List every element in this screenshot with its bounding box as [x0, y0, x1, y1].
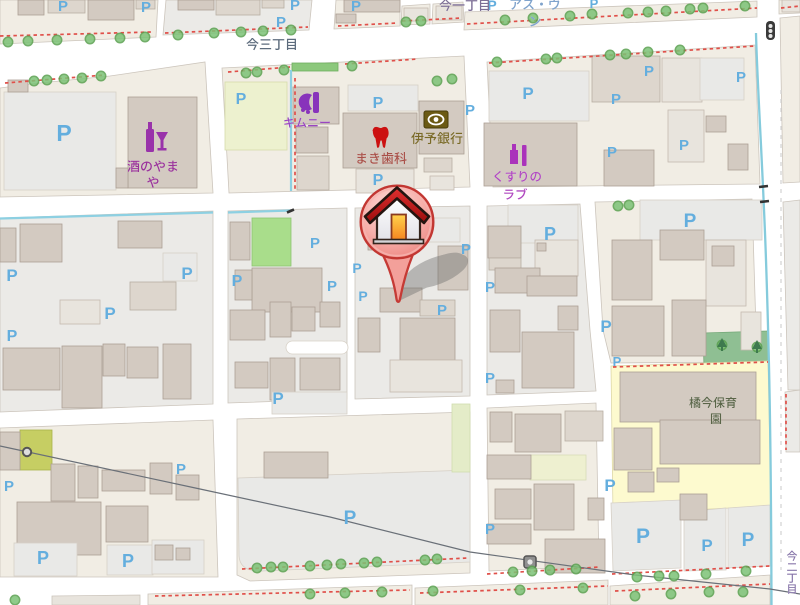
svg-text:P: P: [232, 273, 243, 290]
svg-text:P: P: [344, 508, 357, 529]
svg-text:P: P: [58, 0, 68, 15]
svg-text:P: P: [611, 91, 621, 108]
svg-text:P: P: [437, 302, 447, 319]
svg-text:P: P: [290, 0, 300, 14]
svg-text:P: P: [590, 0, 599, 11]
svg-text:P: P: [607, 144, 617, 161]
svg-text:P: P: [485, 521, 495, 538]
svg-text:P: P: [327, 278, 337, 295]
svg-text:P: P: [276, 14, 286, 31]
svg-text:P: P: [272, 389, 283, 408]
svg-text:P: P: [485, 370, 495, 387]
svg-text:P: P: [358, 288, 367, 304]
svg-text:P: P: [600, 317, 611, 336]
svg-text:P: P: [122, 551, 134, 571]
svg-text:P: P: [373, 172, 384, 189]
svg-text:P: P: [644, 63, 654, 80]
svg-text:P: P: [679, 137, 689, 154]
svg-text:P: P: [236, 91, 247, 108]
svg-text:P: P: [485, 279, 495, 296]
svg-text:P: P: [522, 84, 533, 103]
svg-text:P: P: [604, 476, 615, 495]
svg-text:P: P: [352, 260, 361, 276]
svg-text:P: P: [742, 530, 755, 551]
svg-text:P: P: [701, 536, 712, 555]
svg-text:P: P: [56, 120, 71, 146]
svg-text:P: P: [351, 0, 361, 15]
svg-text:P: P: [613, 354, 622, 369]
svg-text:P: P: [636, 525, 650, 548]
svg-text:P: P: [176, 461, 186, 478]
svg-text:P: P: [6, 266, 17, 285]
svg-text:P: P: [544, 224, 556, 244]
svg-text:P: P: [141, 0, 151, 16]
svg-text:P: P: [104, 304, 115, 323]
svg-text:P: P: [465, 102, 475, 119]
svg-text:P: P: [7, 328, 18, 345]
svg-text:P: P: [4, 478, 14, 495]
svg-text:P: P: [684, 211, 697, 232]
svg-text:P: P: [37, 548, 49, 568]
svg-text:P: P: [373, 95, 384, 112]
svg-text:P: P: [736, 69, 746, 86]
svg-text:P: P: [181, 264, 192, 283]
svg-text:P: P: [310, 235, 320, 252]
